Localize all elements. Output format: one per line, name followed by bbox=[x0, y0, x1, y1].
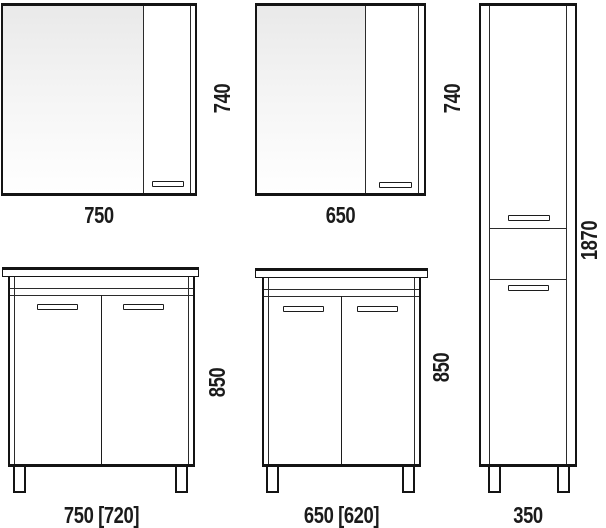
dimension-width-tall-350: 350 bbox=[489, 504, 567, 527]
door-handle bbox=[508, 285, 549, 291]
cabinet-leg bbox=[175, 467, 188, 493]
cabinet-door bbox=[366, 6, 419, 193]
mirror-glass bbox=[257, 6, 366, 193]
door-handle bbox=[152, 181, 184, 187]
cabinet-leg bbox=[488, 467, 501, 493]
side-panel-line bbox=[188, 277, 189, 464]
mirror-cabinet-650 bbox=[255, 3, 426, 196]
side-panel-line bbox=[489, 6, 490, 464]
technical-drawing-canvas: 750 740 650 740 350 1870 750 [72 bbox=[0, 0, 606, 528]
door-gap-line bbox=[101, 295, 102, 464]
mirror-glass bbox=[3, 6, 144, 193]
cabinet-leg bbox=[266, 467, 279, 493]
apron-rail-line bbox=[264, 289, 419, 290]
cabinet-door bbox=[144, 6, 191, 193]
tall-cabinet-350 bbox=[479, 3, 577, 467]
dimension-height-vanity-650: 850 bbox=[423, 307, 459, 427]
side-panel-line bbox=[414, 278, 415, 464]
door-gap-line bbox=[341, 296, 342, 464]
door-handle bbox=[123, 304, 164, 310]
countertop bbox=[255, 268, 428, 278]
apron-rail-line bbox=[10, 288, 193, 289]
vanity-cabinet-650 bbox=[262, 278, 421, 467]
dimension-height-vanity-750: 850 bbox=[199, 322, 235, 442]
door-handle bbox=[508, 215, 550, 221]
door-handle bbox=[357, 306, 398, 312]
side-panel-line bbox=[268, 278, 269, 464]
cabinet-leg bbox=[402, 467, 415, 493]
dimension-width-vanity-650: 650 [620] bbox=[278, 504, 405, 527]
dimension-width-vanity-750: 750 [720] bbox=[27, 504, 177, 527]
dimension-width-mirror-750: 750 bbox=[21, 204, 178, 227]
dimension-width-mirror-650: 650 bbox=[272, 204, 409, 227]
dimension-height-mirror-650: 740 bbox=[432, 48, 472, 148]
door-handle bbox=[283, 306, 324, 312]
side-panel-line bbox=[566, 6, 567, 464]
dimension-height-tall-350: 1870 bbox=[572, 170, 606, 310]
door-handle bbox=[37, 304, 78, 310]
shelf-divider-line bbox=[490, 279, 566, 280]
door-handle bbox=[379, 182, 412, 188]
cabinet-leg bbox=[557, 467, 570, 493]
dimension-height-mirror-750: 740 bbox=[202, 48, 242, 148]
countertop bbox=[2, 267, 199, 277]
side-panel-line bbox=[14, 277, 15, 464]
cabinet-leg bbox=[13, 467, 26, 493]
vanity-cabinet-750 bbox=[8, 277, 195, 467]
shelf-divider-line bbox=[490, 228, 566, 229]
mirror-cabinet-750 bbox=[1, 3, 197, 196]
